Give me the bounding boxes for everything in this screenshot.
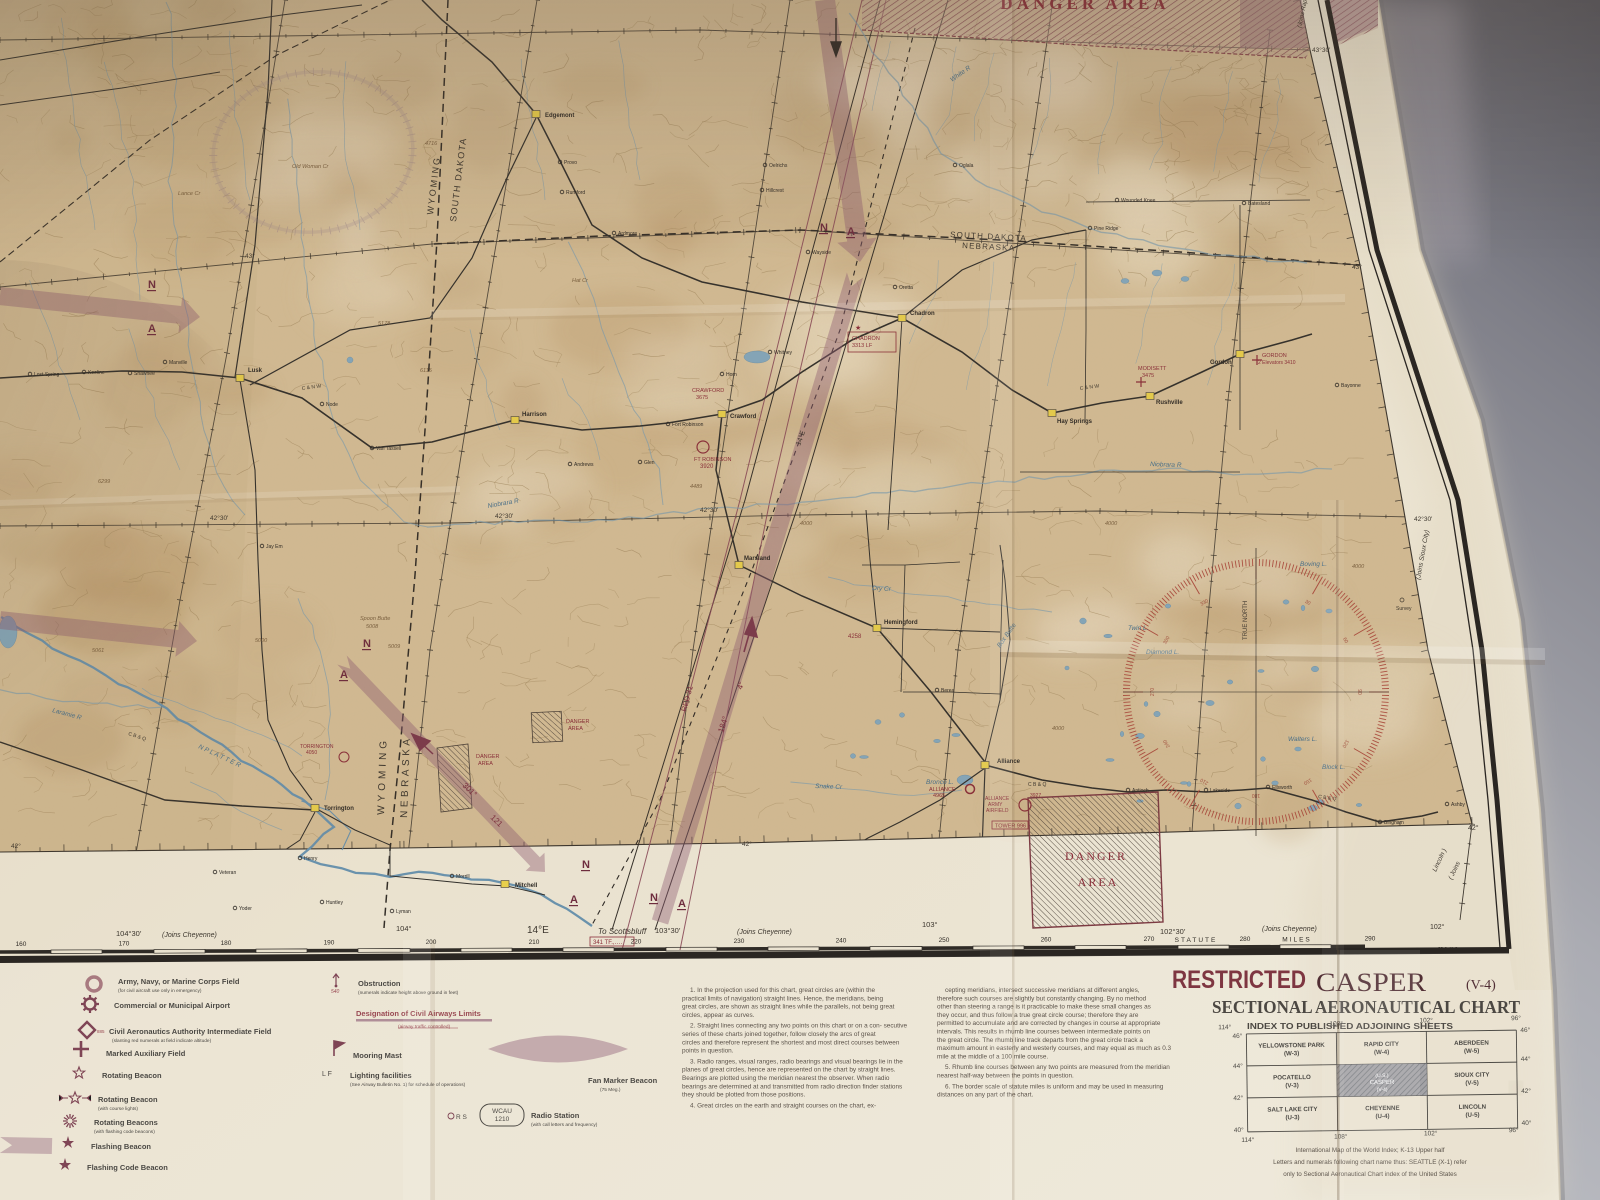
svg-text:42°30′: 42°30′ bbox=[1414, 515, 1433, 523]
svg-text:160: 160 bbox=[16, 941, 27, 948]
svg-text:(Joins Cheyenne): (Joins Cheyenne) bbox=[1262, 926, 1317, 933]
svg-text:AREA: AREA bbox=[1078, 875, 1119, 889]
svg-text:N: N bbox=[582, 859, 590, 871]
svg-text:170: 170 bbox=[119, 941, 130, 948]
svg-text:210: 210 bbox=[529, 939, 540, 946]
svg-text:A: A bbox=[678, 898, 686, 910]
svg-text:290: 290 bbox=[1365, 935, 1376, 942]
svg-text:Henry: Henry bbox=[304, 856, 318, 862]
svg-text:250: 250 bbox=[939, 937, 950, 944]
svg-text:Lyman: Lyman bbox=[396, 909, 411, 915]
svg-text:(Joins Cheyenne): (Joins Cheyenne) bbox=[737, 929, 792, 936]
svg-text:230: 230 bbox=[734, 938, 745, 945]
svg-text:260: 260 bbox=[1041, 937, 1052, 944]
svg-text:103°: 103° bbox=[922, 920, 938, 929]
svg-text:104°30′: 104°30′ bbox=[116, 929, 142, 938]
svg-text:14°E: 14°E bbox=[527, 925, 549, 936]
svg-text:240: 240 bbox=[836, 938, 847, 945]
svg-text:Yoder: Yoder bbox=[239, 906, 252, 912]
svg-text:103°30′: 103°30′ bbox=[655, 926, 681, 935]
svg-text:MILES: MILES bbox=[1282, 937, 1312, 944]
svg-text:N: N bbox=[650, 892, 658, 904]
svg-text:280: 280 bbox=[1240, 936, 1251, 943]
svg-text:Huntley: Huntley bbox=[326, 900, 343, 906]
svg-text:Veteran: Veteran bbox=[219, 870, 236, 876]
svg-text:102°: 102° bbox=[1430, 923, 1445, 931]
svg-text:190: 190 bbox=[324, 940, 335, 947]
svg-text:Morrill: Morrill bbox=[456, 874, 470, 880]
svg-text:42°: 42° bbox=[1468, 824, 1479, 832]
svg-text:A: A bbox=[570, 894, 578, 906]
svg-text:220: 220 bbox=[631, 938, 642, 945]
svg-text:341 TF.,….: 341 TF.,…. bbox=[593, 940, 623, 946]
svg-text:180: 180 bbox=[221, 940, 232, 947]
svg-text:DANGER: DANGER bbox=[1065, 849, 1127, 863]
svg-text:STATUTE: STATUTE bbox=[1175, 937, 1218, 944]
svg-text:104°: 104° bbox=[396, 924, 412, 933]
svg-text:102°30′: 102°30′ bbox=[1160, 927, 1186, 936]
svg-text:Mitchell: Mitchell bbox=[515, 883, 538, 889]
svg-text:To Scottsbluff: To Scottsbluff bbox=[598, 927, 647, 936]
svg-text:(Joins Cheyenne): (Joins Cheyenne) bbox=[162, 932, 217, 939]
svg-text:270: 270 bbox=[1144, 936, 1155, 943]
